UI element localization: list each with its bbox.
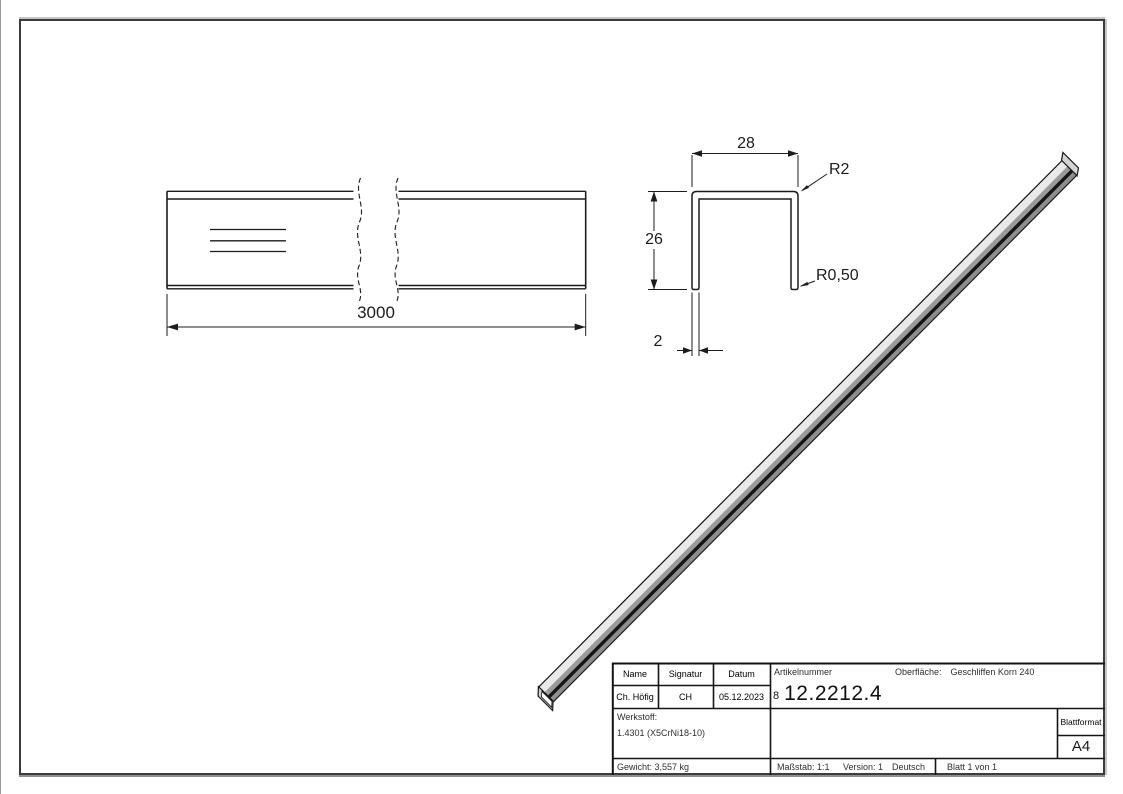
author-name: Ch. Höfig xyxy=(612,685,658,708)
signature-header: Signatur xyxy=(658,663,713,685)
dimension-text-width: 28 xyxy=(726,135,766,153)
sheet-count: Blatt 1 von 1 xyxy=(947,762,997,772)
dimension-28 xyxy=(692,150,798,187)
author-signature: CH xyxy=(658,685,713,708)
dimension-text-length: 3000 xyxy=(340,303,412,323)
u-profile-outline xyxy=(692,192,798,290)
dimension-text-thickness: 2 xyxy=(648,333,668,351)
sheet-format-label: Blattformat xyxy=(1057,708,1105,735)
name-header: Name xyxy=(612,663,658,685)
leader-r2 xyxy=(801,174,828,192)
surface-label: Oberfläche: xyxy=(895,667,942,677)
article-number-label: Artikelnummer xyxy=(774,667,832,677)
date-value: 05.12.2023 xyxy=(713,685,770,708)
article-number-value: 12.2212.4 xyxy=(784,682,882,705)
section-view xyxy=(648,150,827,356)
isometric-view xyxy=(530,152,1085,710)
language-value: Deutsch xyxy=(892,762,925,772)
leader-r050 xyxy=(800,281,816,287)
version-value: Version: 1 xyxy=(843,762,883,772)
dimension-text-height: 26 xyxy=(636,231,672,249)
surface-texture-lines xyxy=(210,230,286,252)
dimension-2 xyxy=(677,293,723,357)
break-line-right xyxy=(395,178,399,301)
scale-value: Maßstab: 1:1 xyxy=(777,762,830,772)
surface-value: Geschliffen Korn 240 xyxy=(951,667,1035,677)
material-label: Werkstoff: xyxy=(617,712,657,722)
dimension-text-edge-radius: R0,50 xyxy=(816,267,859,285)
drawing-page: { "drawing": { "side_view": { "length": … xyxy=(0,0,1123,794)
material-value: 1.4301 (X5CrNi18-10) xyxy=(617,728,705,738)
break-line-left xyxy=(358,178,362,301)
sheet-format-value: A4 xyxy=(1057,735,1105,758)
surface-spec: Oberfläche: Geschliffen Korn 240 xyxy=(895,667,1034,677)
date-header: Datum xyxy=(713,663,770,685)
article-number: 812.2212.4 xyxy=(773,682,882,706)
dimension-text-corner-radius: R2 xyxy=(829,161,849,179)
weight-value: Gewicht: 3,557 kg xyxy=(617,762,689,772)
article-number-prefix: 8 xyxy=(773,690,779,702)
